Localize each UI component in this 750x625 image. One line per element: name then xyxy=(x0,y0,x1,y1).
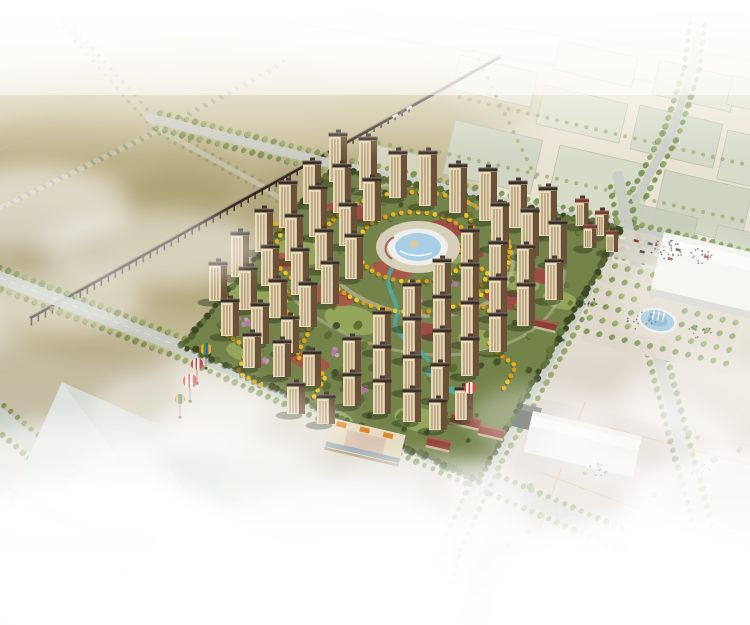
aerial-rendering xyxy=(0,0,750,625)
scene-canvas xyxy=(0,0,750,625)
